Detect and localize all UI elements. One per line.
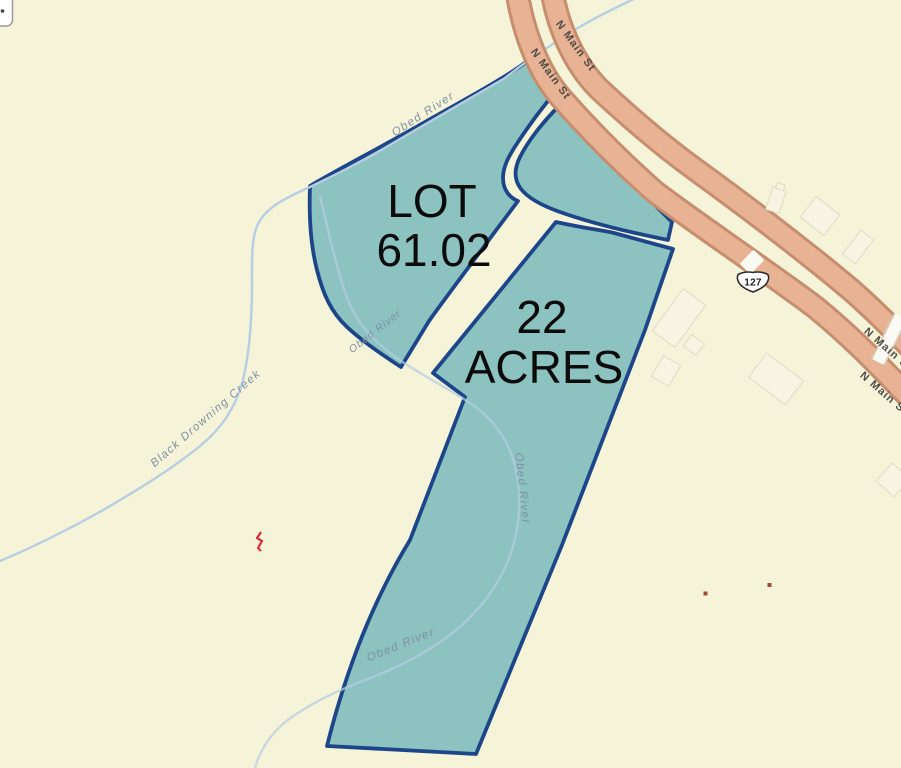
acreage-label-line2: ACRES	[465, 341, 623, 393]
acreage-label-line1: 22	[516, 291, 567, 343]
control-dot-icon	[1, 9, 5, 13]
map-canvas[interactable]: 127 N Main St N Main St N Main St N Main…	[0, 0, 901, 768]
lot-number-label-line2: 61.02	[376, 224, 491, 276]
map-zoom-control[interactable]	[0, 0, 13, 26]
poi-dot	[768, 583, 772, 587]
poi-dot	[704, 592, 708, 596]
lot-number-label-line1: LOT	[387, 175, 476, 227]
route-shield-number: 127	[744, 278, 762, 289]
parcel-map[interactable]: 127 N Main St N Main St N Main St N Main…	[0, 0, 901, 768]
